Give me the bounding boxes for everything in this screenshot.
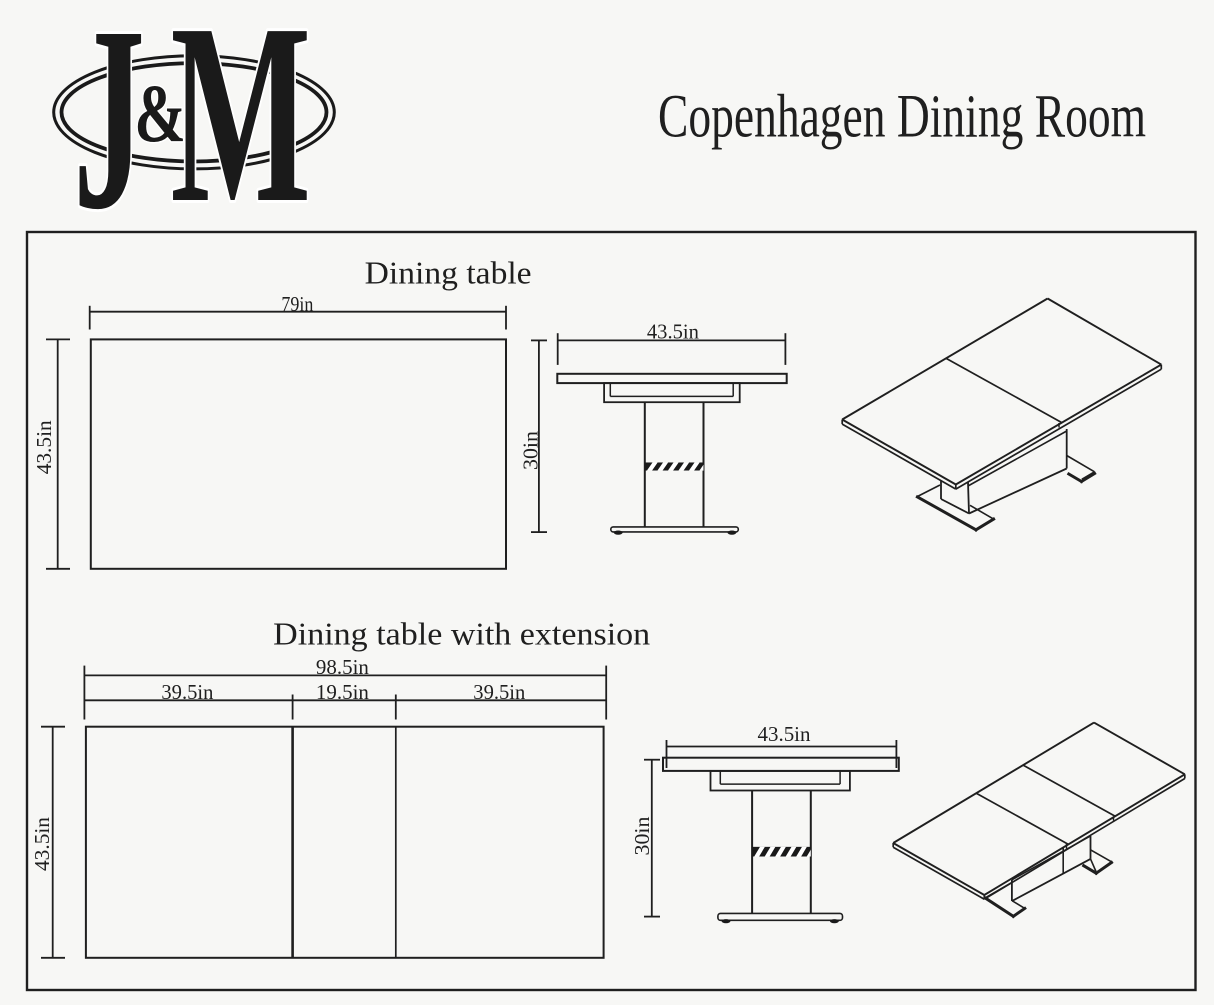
svg-text:39.5in: 39.5in: [473, 680, 525, 704]
svg-text:43.5in: 43.5in: [32, 420, 56, 474]
svg-text:79in: 79in: [281, 292, 313, 316]
svg-text:Copenhagen Dining Room: Copenhagen Dining Room: [658, 84, 1146, 151]
svg-text:43.5in: 43.5in: [647, 320, 699, 344]
svg-text:43.5in: 43.5in: [30, 817, 54, 871]
svg-text:30in: 30in: [630, 816, 654, 856]
svg-text:98.5in: 98.5in: [316, 655, 369, 679]
svg-text:39.5in: 39.5in: [161, 680, 213, 704]
svg-text:30in: 30in: [519, 430, 543, 470]
svg-text:Dining table: Dining table: [365, 255, 532, 291]
svg-text:M: M: [171, 0, 312, 256]
svg-text:&: &: [134, 68, 186, 159]
svg-text:43.5in: 43.5in: [758, 722, 811, 746]
svg-text:Dining table with extension: Dining table with extension: [273, 616, 650, 652]
svg-text:19.5in: 19.5in: [316, 680, 369, 704]
